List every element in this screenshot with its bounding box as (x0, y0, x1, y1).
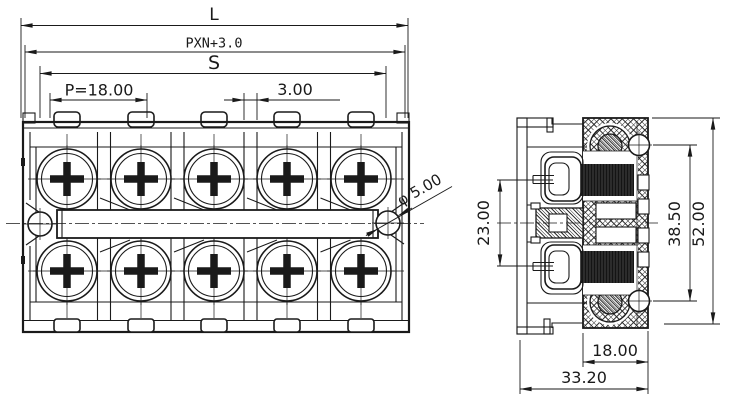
drawing-canvas: L PXN+3.0 S P=18.00 3.00 φ 5.00 (0, 0, 730, 401)
dim-gap-label: 3.00 (277, 80, 313, 99)
front-view: L PXN+3.0 S P=18.00 3.00 φ 5.00 (6, 5, 452, 332)
dim-screw-spacing-label: 23.00 (474, 200, 493, 246)
front-terminal-bar (57, 210, 378, 238)
dim-overall-length-label: L (209, 5, 219, 25)
dim-formula-label: PXN+3.0 (186, 36, 243, 52)
dim-body-width-label: 18.00 (592, 341, 638, 360)
side-view: 23.00 38.50 52.00 18.00 33.20 (474, 118, 720, 394)
dim-height-label: 52.00 (689, 201, 708, 247)
dim-pitch-label: P=18.00 (65, 81, 134, 100)
technical-drawing: L PXN+3.0 S P=18.00 3.00 φ 5.00 (0, 0, 730, 401)
dim-hole-spacing-label: 38.50 (665, 201, 684, 247)
dim-overall-width-label: 33.20 (561, 368, 607, 387)
dim-span-label: S (208, 52, 220, 74)
